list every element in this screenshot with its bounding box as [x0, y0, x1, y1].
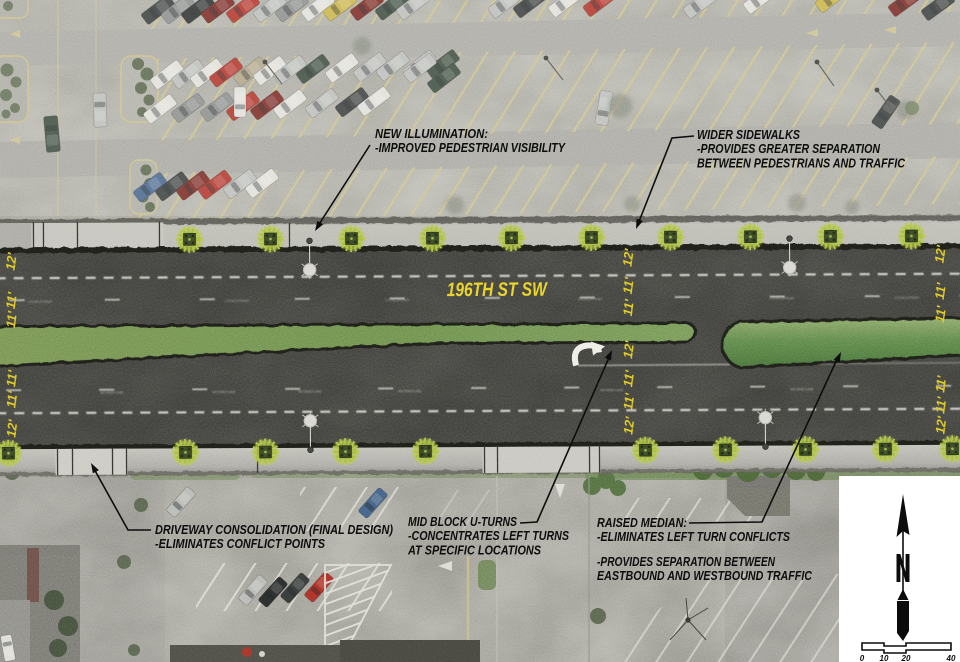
- svg-text:0: 0: [860, 654, 865, 662]
- svg-text:RAISED MEDIAN:: RAISED MEDIAN:: [597, 515, 687, 530]
- svg-text:20: 20: [901, 654, 911, 662]
- svg-text:-ELIMINATES LEFT TURN CONFLICT: -ELIMINATES LEFT TURN CONFLICTS: [597, 529, 790, 544]
- svg-text:40: 40: [946, 654, 956, 662]
- svg-text:-IMPROVED PEDESTRIAN VISIBILIT: -IMPROVED PEDESTRIAN VISIBILITY: [375, 140, 566, 155]
- svg-text:NEW ILLUMINATION:: NEW ILLUMINATION:: [375, 126, 488, 141]
- svg-text:10: 10: [880, 654, 889, 662]
- svg-text:BETWEEN PEDESTRIANS AND TRAFFI: BETWEEN PEDESTRIANS AND TRAFFIC: [697, 155, 906, 170]
- svg-text:EASTBOUND AND WESTBOUND TRAFFI: EASTBOUND AND WESTBOUND TRAFFIC: [597, 568, 813, 583]
- svg-text:WIDER SIDEWALKS: WIDER SIDEWALKS: [697, 127, 800, 142]
- svg-text:-CONCENTRATES LEFT TURNS: -CONCENTRATES LEFT TURNS: [408, 528, 569, 543]
- svg-text:-ELIMINATES CONFLICT POINTS: -ELIMINATES CONFLICT POINTS: [155, 536, 325, 551]
- svg-text:-PROVIDES GREATER SEPARATION: -PROVIDES GREATER SEPARATION: [697, 141, 880, 156]
- svg-text:MID BLOCK U-TURNS: MID BLOCK U-TURNS: [408, 514, 517, 529]
- svg-text:-PROVIDES SEPARATION BETWEEN: -PROVIDES SEPARATION BETWEEN: [597, 554, 775, 569]
- svg-text:AT SPECIFIC LOCATIONS: AT SPECIFIC LOCATIONS: [407, 542, 541, 557]
- svg-text:DRIVEWAY CONSOLIDATION (FINAL: DRIVEWAY CONSOLIDATION (FINAL DESIGN): [155, 522, 393, 537]
